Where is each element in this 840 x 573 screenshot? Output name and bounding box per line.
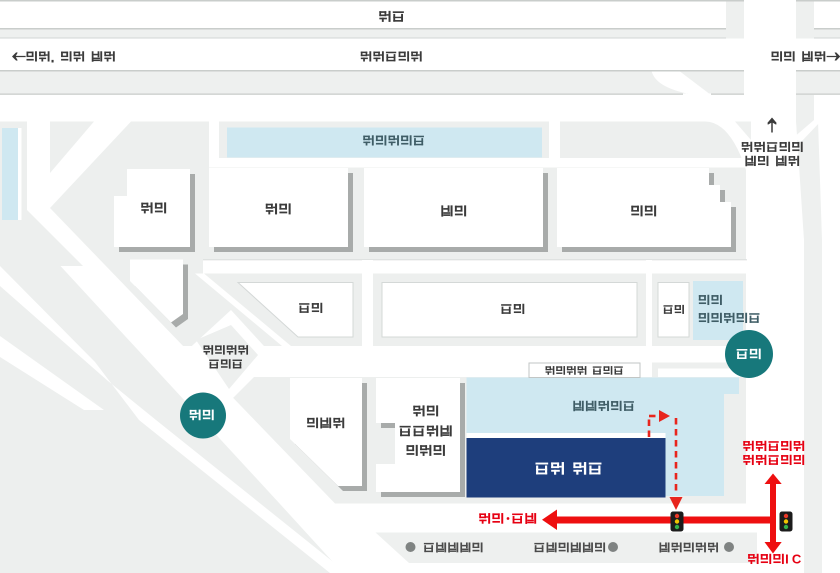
svg-text:C: C bbox=[792, 552, 802, 567]
svg-text:I: I bbox=[785, 552, 789, 567]
